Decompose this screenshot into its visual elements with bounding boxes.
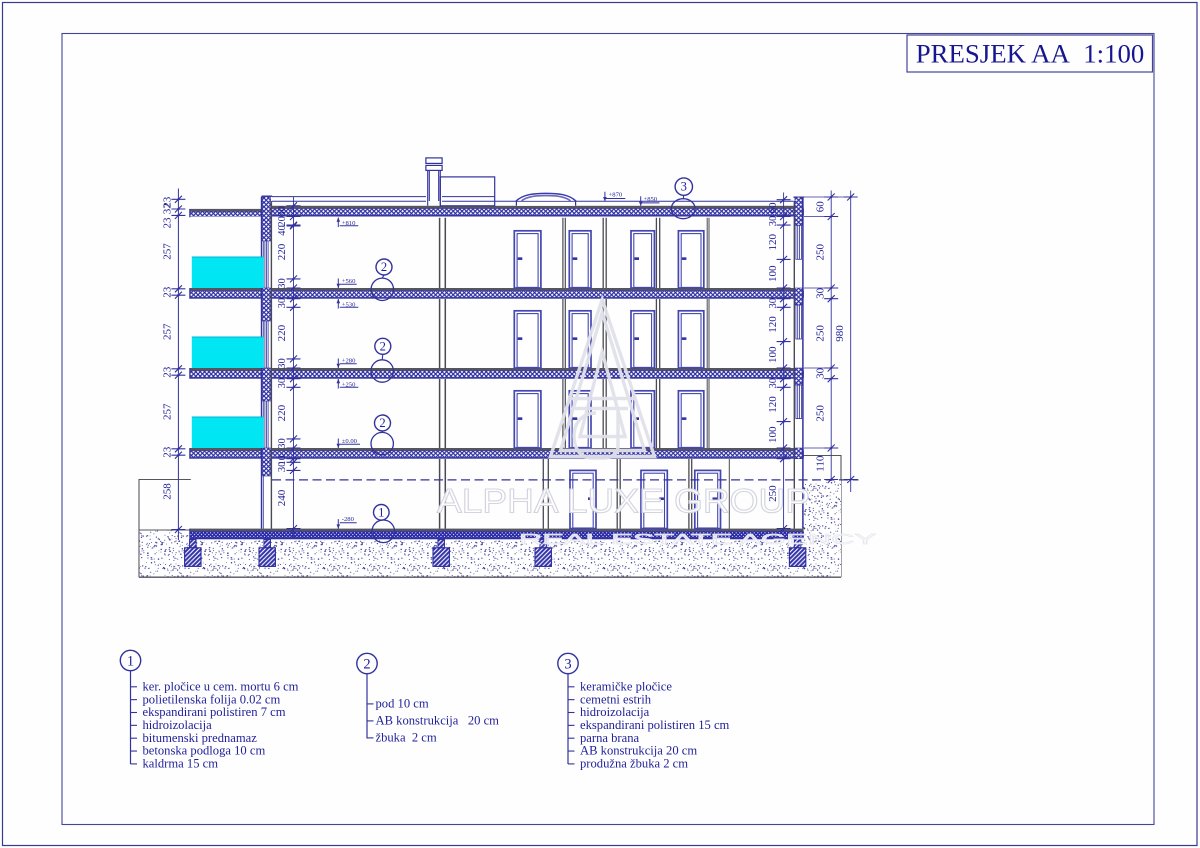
svg-text:+560: +560 [342,278,356,285]
svg-text:30: 30 [277,278,288,289]
svg-text:3: 3 [564,656,571,672]
svg-text:257: 257 [161,323,173,340]
svg-text:30: 30 [277,378,288,389]
svg-text:1: 1 [127,653,134,669]
svg-text:-280: -280 [342,516,355,523]
svg-text:258: 258 [161,483,173,500]
svg-text:100: 100 [767,346,779,363]
svg-text:30: 30 [277,438,288,449]
svg-text:120: 120 [767,234,779,251]
svg-text:250: 250 [815,243,827,260]
svg-text:2: 2 [380,339,386,353]
svg-text:220: 220 [276,404,288,421]
svg-text:30: 30 [815,287,827,299]
svg-text:100: 100 [767,265,779,282]
svg-text:23: 23 [161,217,173,229]
svg-text:+850: +850 [644,196,658,203]
svg-text:30: 30 [768,378,779,389]
svg-text:+810: +810 [342,220,356,227]
svg-text:30: 30 [815,367,827,379]
svg-text:kaldrma 15 cm: kaldrma 15 cm [143,757,219,771]
svg-text:REAL ESTATE AGENCY: REAL ESTATE AGENCY [519,532,877,548]
svg-text:100: 100 [767,426,779,443]
svg-text:+530: +530 [342,301,356,308]
svg-text:+280: +280 [342,358,356,365]
svg-text:2: 2 [363,656,370,672]
svg-text:±0.00: ±0.00 [342,438,358,445]
svg-text:ALPHA LUXE GROUP: ALPHA LUXE GROUP [437,483,810,521]
svg-text:240: 240 [276,489,288,506]
svg-text:2: 2 [379,416,385,430]
svg-text:120: 120 [767,316,779,333]
svg-text:+250: +250 [342,381,356,388]
svg-text:1: 1 [378,505,384,519]
svg-text:2: 2 [381,260,387,274]
svg-text:120: 120 [767,396,779,413]
svg-text:AB konstrukcija 20 cm: AB konstrukcija 20 cm [376,714,500,728]
svg-text:produžna žbuka 2 cm: produžna žbuka 2 cm [580,757,688,771]
svg-text:30: 30 [768,216,779,227]
svg-text:30: 30 [768,298,779,309]
svg-text:60: 60 [815,201,827,213]
svg-text:257: 257 [161,403,173,420]
svg-text:980: 980 [834,325,846,342]
svg-text:40: 40 [277,225,288,236]
svg-text:250: 250 [815,325,827,342]
svg-text:žbuka 2 cm: žbuka 2 cm [376,731,437,745]
svg-text:257: 257 [161,243,173,260]
svg-text:30: 30 [277,358,288,369]
svg-text:250: 250 [815,405,827,422]
svg-text:PRESJEK AA 1:100: PRESJEK AA 1:100 [916,39,1145,69]
svg-text:220: 220 [276,243,288,260]
svg-text:30: 30 [277,206,288,217]
svg-text:110: 110 [815,455,827,472]
svg-text:23: 23 [161,366,173,378]
svg-text:32: 32 [161,203,173,214]
svg-text:30: 30 [277,298,288,309]
svg-text:30: 30 [277,462,288,473]
svg-text:60: 60 [767,202,779,214]
svg-text:3: 3 [681,180,687,194]
svg-text:pod 10 cm: pod 10 cm [376,697,429,711]
svg-text:220: 220 [276,324,288,341]
svg-text:23: 23 [161,446,173,458]
svg-text:+870: +870 [609,191,623,198]
svg-text:23: 23 [161,286,173,298]
